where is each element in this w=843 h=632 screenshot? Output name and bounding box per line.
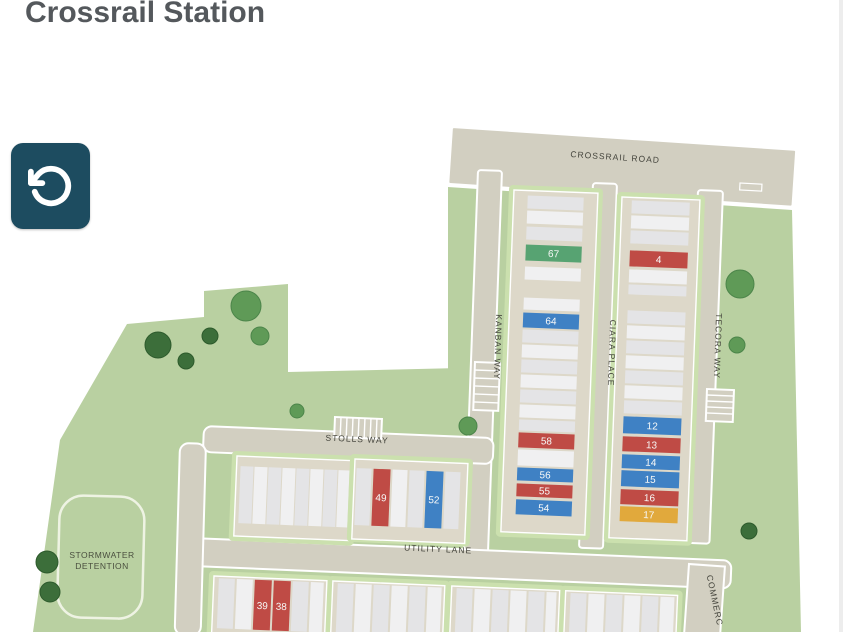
lot (294, 468, 309, 525)
tree-icon (729, 337, 745, 353)
app-window: Crossrail Station (0, 0, 843, 632)
tree-icon (145, 332, 171, 358)
lot-38[interactable]: 38 (272, 581, 291, 632)
lot (520, 374, 576, 389)
tree-icon (40, 582, 60, 602)
tree-icon (178, 353, 194, 369)
lot-38-number: 38 (275, 602, 287, 613)
lot (309, 582, 324, 632)
lot (336, 470, 349, 527)
lot (624, 385, 682, 400)
lot-4-number: 4 (656, 255, 662, 266)
lot (280, 468, 295, 525)
lot (390, 585, 408, 632)
lot-52-number: 52 (428, 495, 440, 506)
lot (604, 594, 622, 632)
lot (627, 325, 685, 340)
lot (390, 470, 407, 528)
lot (322, 470, 337, 527)
lot (527, 196, 583, 211)
lot (522, 329, 578, 344)
lot (354, 584, 372, 632)
lot (630, 230, 688, 245)
lot-15-number: 15 (644, 475, 656, 486)
lot-17[interactable]: 17 (620, 506, 679, 523)
lot (491, 590, 509, 632)
lot (407, 470, 424, 528)
lot-4[interactable]: 4 (629, 250, 688, 268)
lot (408, 586, 426, 632)
road-stub (740, 183, 762, 191)
label-stormwater-line2: DETENTION (75, 561, 129, 571)
road-west (175, 443, 206, 632)
lot (336, 583, 354, 632)
lot-52[interactable]: 52 (424, 471, 443, 529)
lot-14-number: 14 (645, 458, 657, 469)
tree-icon (741, 523, 757, 539)
tree-icon (202, 328, 218, 344)
lot-56[interactable]: 56 (517, 467, 573, 482)
lot-55-number: 55 (539, 486, 551, 497)
tree-icon (726, 270, 754, 298)
parking-tecora (706, 389, 734, 422)
site-map: 67 64 58 56 (0, 0, 843, 632)
lot-13[interactable]: 13 (622, 436, 681, 453)
lot-54-number: 54 (538, 503, 550, 514)
label-stormwater-line1: STORMWATER (69, 550, 134, 560)
lot (235, 579, 253, 630)
lot (527, 211, 583, 226)
lot-12-number: 12 (646, 421, 658, 432)
lot (631, 200, 689, 215)
lot (217, 578, 235, 629)
lot (626, 340, 684, 355)
lot-67-number: 67 (548, 249, 560, 260)
lot (624, 400, 682, 415)
lot-17-number: 17 (643, 510, 655, 521)
lot (372, 585, 390, 632)
tree-icon (251, 327, 269, 345)
lot (625, 370, 683, 385)
lot-54[interactable]: 54 (516, 499, 573, 516)
lot-49-number: 49 (375, 493, 387, 504)
lot (517, 449, 574, 467)
lot (238, 466, 253, 523)
lot (658, 597, 674, 632)
lot (291, 581, 309, 632)
lot-55[interactable]: 55 (516, 483, 572, 498)
lot-15[interactable]: 15 (621, 470, 680, 488)
lot-56-number: 56 (539, 470, 551, 481)
lot-67[interactable]: 67 (525, 244, 582, 262)
lot (627, 310, 685, 325)
lot (640, 596, 658, 632)
lot (527, 591, 545, 632)
lot-16-number: 16 (644, 493, 656, 504)
lot (525, 266, 581, 281)
lot (443, 472, 460, 530)
lot (523, 297, 579, 311)
lot (569, 593, 587, 632)
lot-64[interactable]: 64 (523, 312, 580, 329)
tree-icon (36, 551, 58, 573)
lot-58-number: 58 (541, 436, 553, 447)
lot (631, 215, 689, 230)
lot-39-number: 39 (256, 601, 268, 612)
lot (252, 467, 267, 524)
lot (509, 590, 527, 632)
lot (520, 389, 576, 404)
lot-16[interactable]: 16 (620, 489, 679, 506)
lot (586, 594, 604, 632)
tree-icon (231, 291, 261, 321)
lot (266, 467, 281, 524)
lot (622, 595, 640, 632)
lot (521, 359, 577, 374)
lot-13-number: 13 (646, 440, 658, 451)
block-column-a: 67 64 58 56 (496, 185, 603, 540)
block-column-b: 4 12 13 14 15 (604, 192, 705, 546)
lot-64-number: 64 (545, 316, 557, 327)
lot (308, 469, 323, 526)
lot (625, 355, 683, 370)
lot (473, 589, 491, 632)
lot-39[interactable]: 39 (253, 580, 272, 631)
lot (526, 227, 582, 242)
lot (519, 419, 575, 432)
lot-12[interactable]: 12 (623, 416, 682, 435)
tree-icon (459, 417, 477, 435)
lot-49[interactable]: 49 (371, 469, 390, 527)
lot-14[interactable]: 14 (622, 454, 680, 470)
tree-icon (290, 404, 304, 418)
lot (426, 587, 442, 632)
lot-58[interactable]: 58 (518, 432, 575, 449)
block-stolls-left (229, 451, 358, 546)
lot (455, 588, 473, 632)
lot (522, 344, 578, 359)
block-stolls-right: 49 52 (347, 454, 473, 547)
lot (629, 269, 687, 284)
lot (519, 404, 575, 419)
lot (354, 468, 371, 526)
